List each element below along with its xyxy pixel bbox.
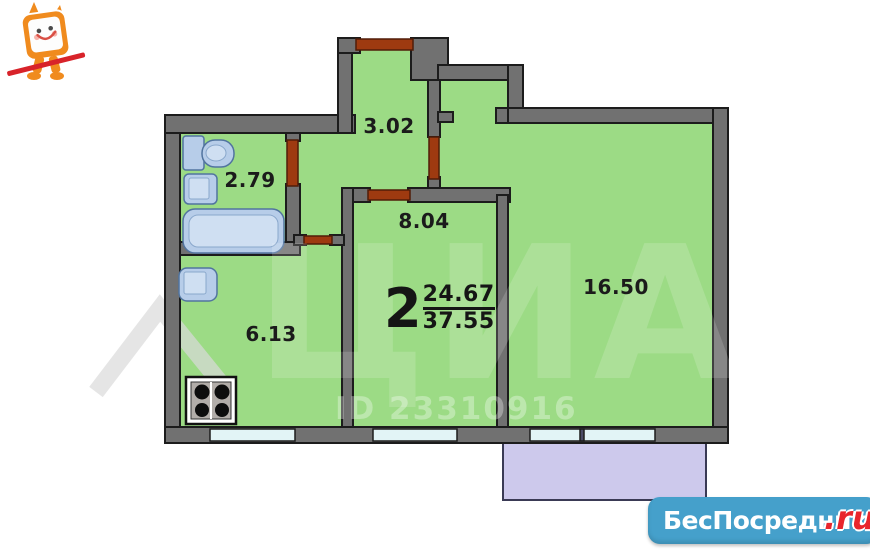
sink-icon bbox=[184, 174, 217, 204]
brand-watermark: ЦИАН bbox=[255, 222, 870, 407]
kitchen-window bbox=[210, 429, 295, 441]
apartment-summary: 2 24.67 37.55 bbox=[384, 283, 495, 334]
floorplan-image: ЦИАН ID 23310916 3.02 2.79 8.04 6.13 16.… bbox=[0, 0, 870, 550]
inner-room-window bbox=[373, 429, 457, 441]
listing-id-watermark: ID 23310916 bbox=[335, 391, 578, 427]
area-fraction: 24.67 37.55 bbox=[423, 283, 495, 334]
hallway-area-label: 3.02 bbox=[363, 114, 414, 138]
total-area-value: 37.55 bbox=[423, 310, 495, 334]
kitchen-sink-icon bbox=[179, 268, 217, 301]
stove-icon bbox=[186, 377, 236, 424]
living-room-area-label: 16.50 bbox=[583, 275, 649, 299]
wall-hall-right bbox=[428, 80, 440, 137]
site-domain-suffix: .ru bbox=[824, 499, 870, 537]
living-area-value: 24.67 bbox=[423, 283, 495, 310]
balcony-door-divider bbox=[580, 429, 584, 441]
wall-top-right bbox=[508, 108, 728, 123]
bathroom-door-icon bbox=[287, 140, 298, 186]
bathroom-area-label: 2.79 bbox=[224, 168, 275, 192]
balcony bbox=[503, 438, 706, 500]
wall-stub bbox=[438, 112, 453, 122]
wall-left-outer bbox=[165, 115, 180, 443]
rooms-count: 2 bbox=[384, 285, 422, 333]
wall-room-top-b bbox=[408, 188, 510, 202]
windows bbox=[210, 429, 655, 441]
mascot-icon bbox=[0, 0, 92, 92]
kitchen-area-label: 6.13 bbox=[245, 322, 296, 346]
inner-room-door-icon bbox=[368, 190, 410, 200]
entrance-door-icon bbox=[356, 39, 413, 50]
toilet-icon bbox=[183, 136, 234, 170]
living-room-door-icon bbox=[429, 137, 439, 179]
living-room-window bbox=[530, 429, 655, 441]
wall-top-left bbox=[165, 115, 355, 133]
passage-area bbox=[435, 75, 513, 193]
inner-room-area-label: 8.04 bbox=[398, 209, 449, 233]
